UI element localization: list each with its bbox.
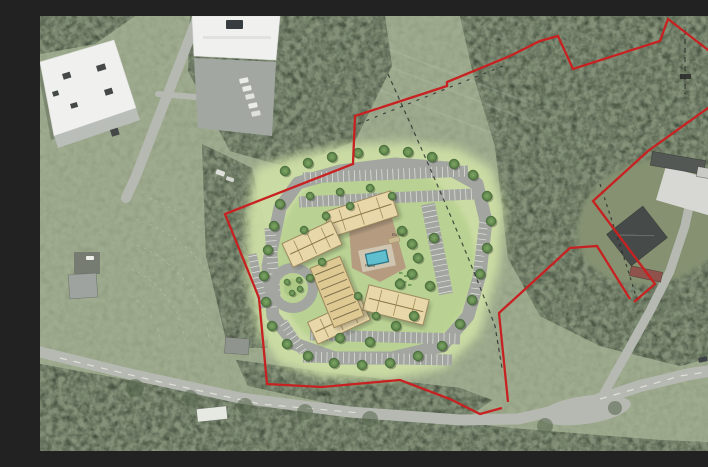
haze-overlay — [40, 16, 708, 451]
aerial-site-plan-screenshot: Aerial site plan with property boundary … — [40, 16, 708, 451]
aerial-map: BoccePatio — [40, 16, 708, 451]
